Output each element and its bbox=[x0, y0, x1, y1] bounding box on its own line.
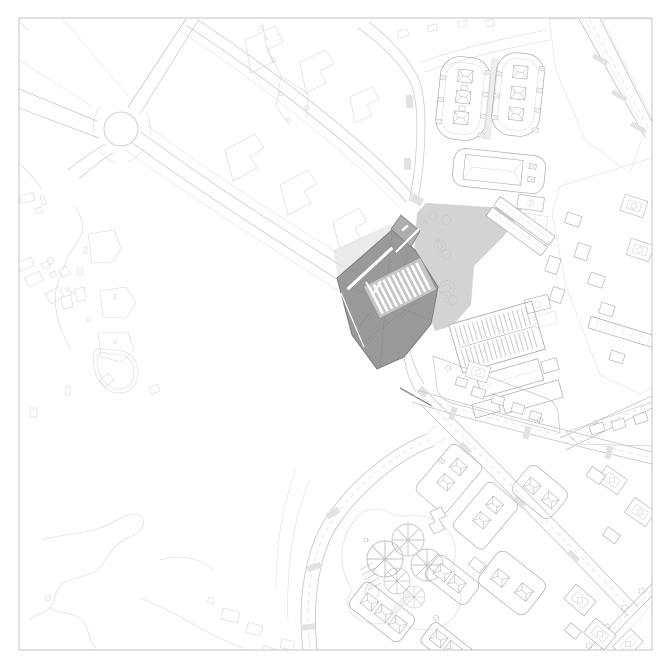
long-bar-building bbox=[588, 316, 657, 347]
roundabout-junction bbox=[94, 106, 151, 163]
east-dense-district bbox=[545, 19, 656, 394]
site-plan-canvas bbox=[0, 0, 670, 668]
drawing-border bbox=[19, 18, 652, 650]
east-avenues bbox=[412, 390, 652, 668]
west-open-land bbox=[17, 22, 160, 417]
center-south-blocks bbox=[414, 356, 656, 551]
roundabout-circle bbox=[104, 112, 138, 146]
school-campus bbox=[449, 294, 567, 422]
southwest-coast-paths bbox=[30, 514, 295, 661]
site-plan-page bbox=[0, 0, 670, 668]
ring-road bbox=[276, 426, 446, 650]
